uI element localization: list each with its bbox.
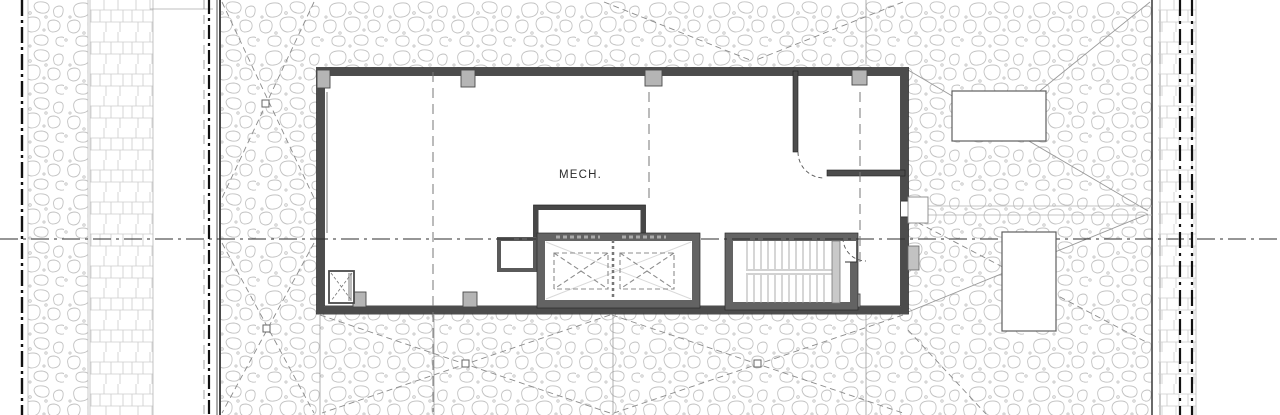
column bbox=[461, 70, 475, 87]
left-site-strips bbox=[22, 0, 220, 415]
paver-walkway-left bbox=[90, 0, 153, 415]
stair-door-opening bbox=[845, 241, 856, 262]
right-site-strips bbox=[1158, 0, 1196, 415]
elevator-shaft bbox=[537, 233, 700, 308]
stair-landing-edge bbox=[832, 241, 840, 303]
stair-enclosure bbox=[725, 233, 866, 310]
mechanical-penthouse: MECH. bbox=[317, 68, 929, 315]
roof-drain-4 bbox=[754, 360, 761, 367]
column bbox=[317, 70, 330, 88]
door-landing-pad bbox=[908, 197, 928, 223]
column bbox=[645, 70, 662, 86]
roof-hatch bbox=[329, 271, 354, 303]
equipment-pad-2 bbox=[1002, 232, 1056, 331]
elevator-vestibule bbox=[499, 239, 535, 270]
roof-drain-3 bbox=[462, 360, 469, 367]
roof-drain-1 bbox=[262, 100, 269, 107]
roof-drain-2 bbox=[263, 325, 270, 332]
floor-plan-canvas: MECH. bbox=[0, 0, 1280, 415]
gravel-strip-left bbox=[28, 0, 88, 415]
equipment-pad-1 bbox=[952, 91, 1046, 141]
paver-walkway-right bbox=[1158, 0, 1196, 415]
mech-room-label: MECH. bbox=[559, 169, 602, 181]
column bbox=[852, 70, 867, 85]
column bbox=[353, 292, 366, 307]
column bbox=[463, 292, 477, 307]
exterior-ladder bbox=[908, 246, 919, 270]
roof-plan-drawing: MECH. bbox=[0, 0, 1280, 415]
